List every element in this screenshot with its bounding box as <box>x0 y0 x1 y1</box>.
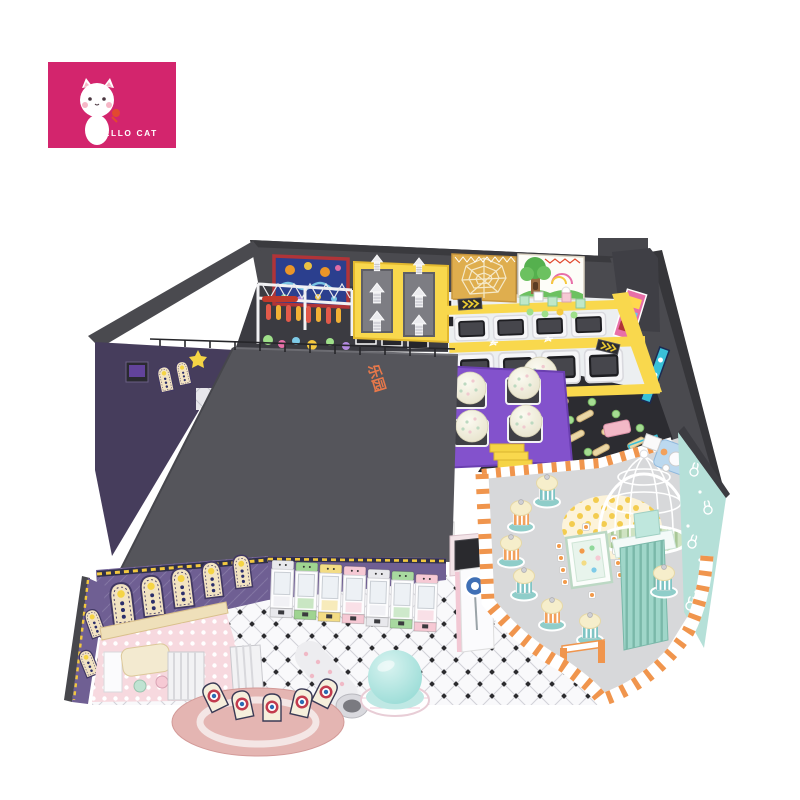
claw-machine <box>342 566 366 624</box>
toddler-table <box>120 643 171 677</box>
playground-render: HELLO CAT <box>0 0 800 800</box>
brand-name: HELLO CAT <box>96 128 158 138</box>
product-image: HELLO CAT <box>0 0 800 800</box>
claw-machine <box>294 562 318 620</box>
claw-machine <box>390 571 414 629</box>
claw-machine <box>366 569 390 627</box>
ball-trampoline-deck <box>440 366 572 474</box>
brand-logo-card: HELLO CAT <box>48 62 176 148</box>
claw-machine <box>414 574 438 632</box>
roller-bar <box>262 296 298 302</box>
forest-mural <box>518 254 584 300</box>
claw-machine <box>270 560 294 618</box>
spider-web-wall <box>452 254 516 302</box>
climb-arrow-wall <box>354 255 448 342</box>
toddler-cabinet <box>104 652 122 692</box>
claw-machine <box>318 564 342 622</box>
